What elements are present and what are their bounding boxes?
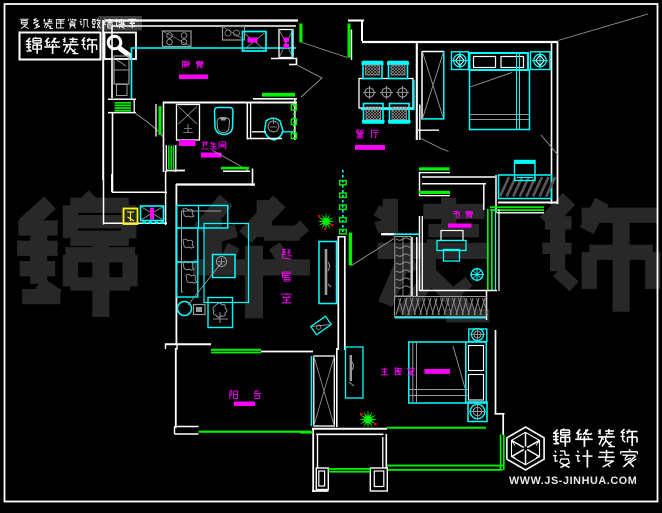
svg-text:WWW.JS-JINHUA.COM: WWW.JS-JINHUA.COM (509, 475, 637, 487)
